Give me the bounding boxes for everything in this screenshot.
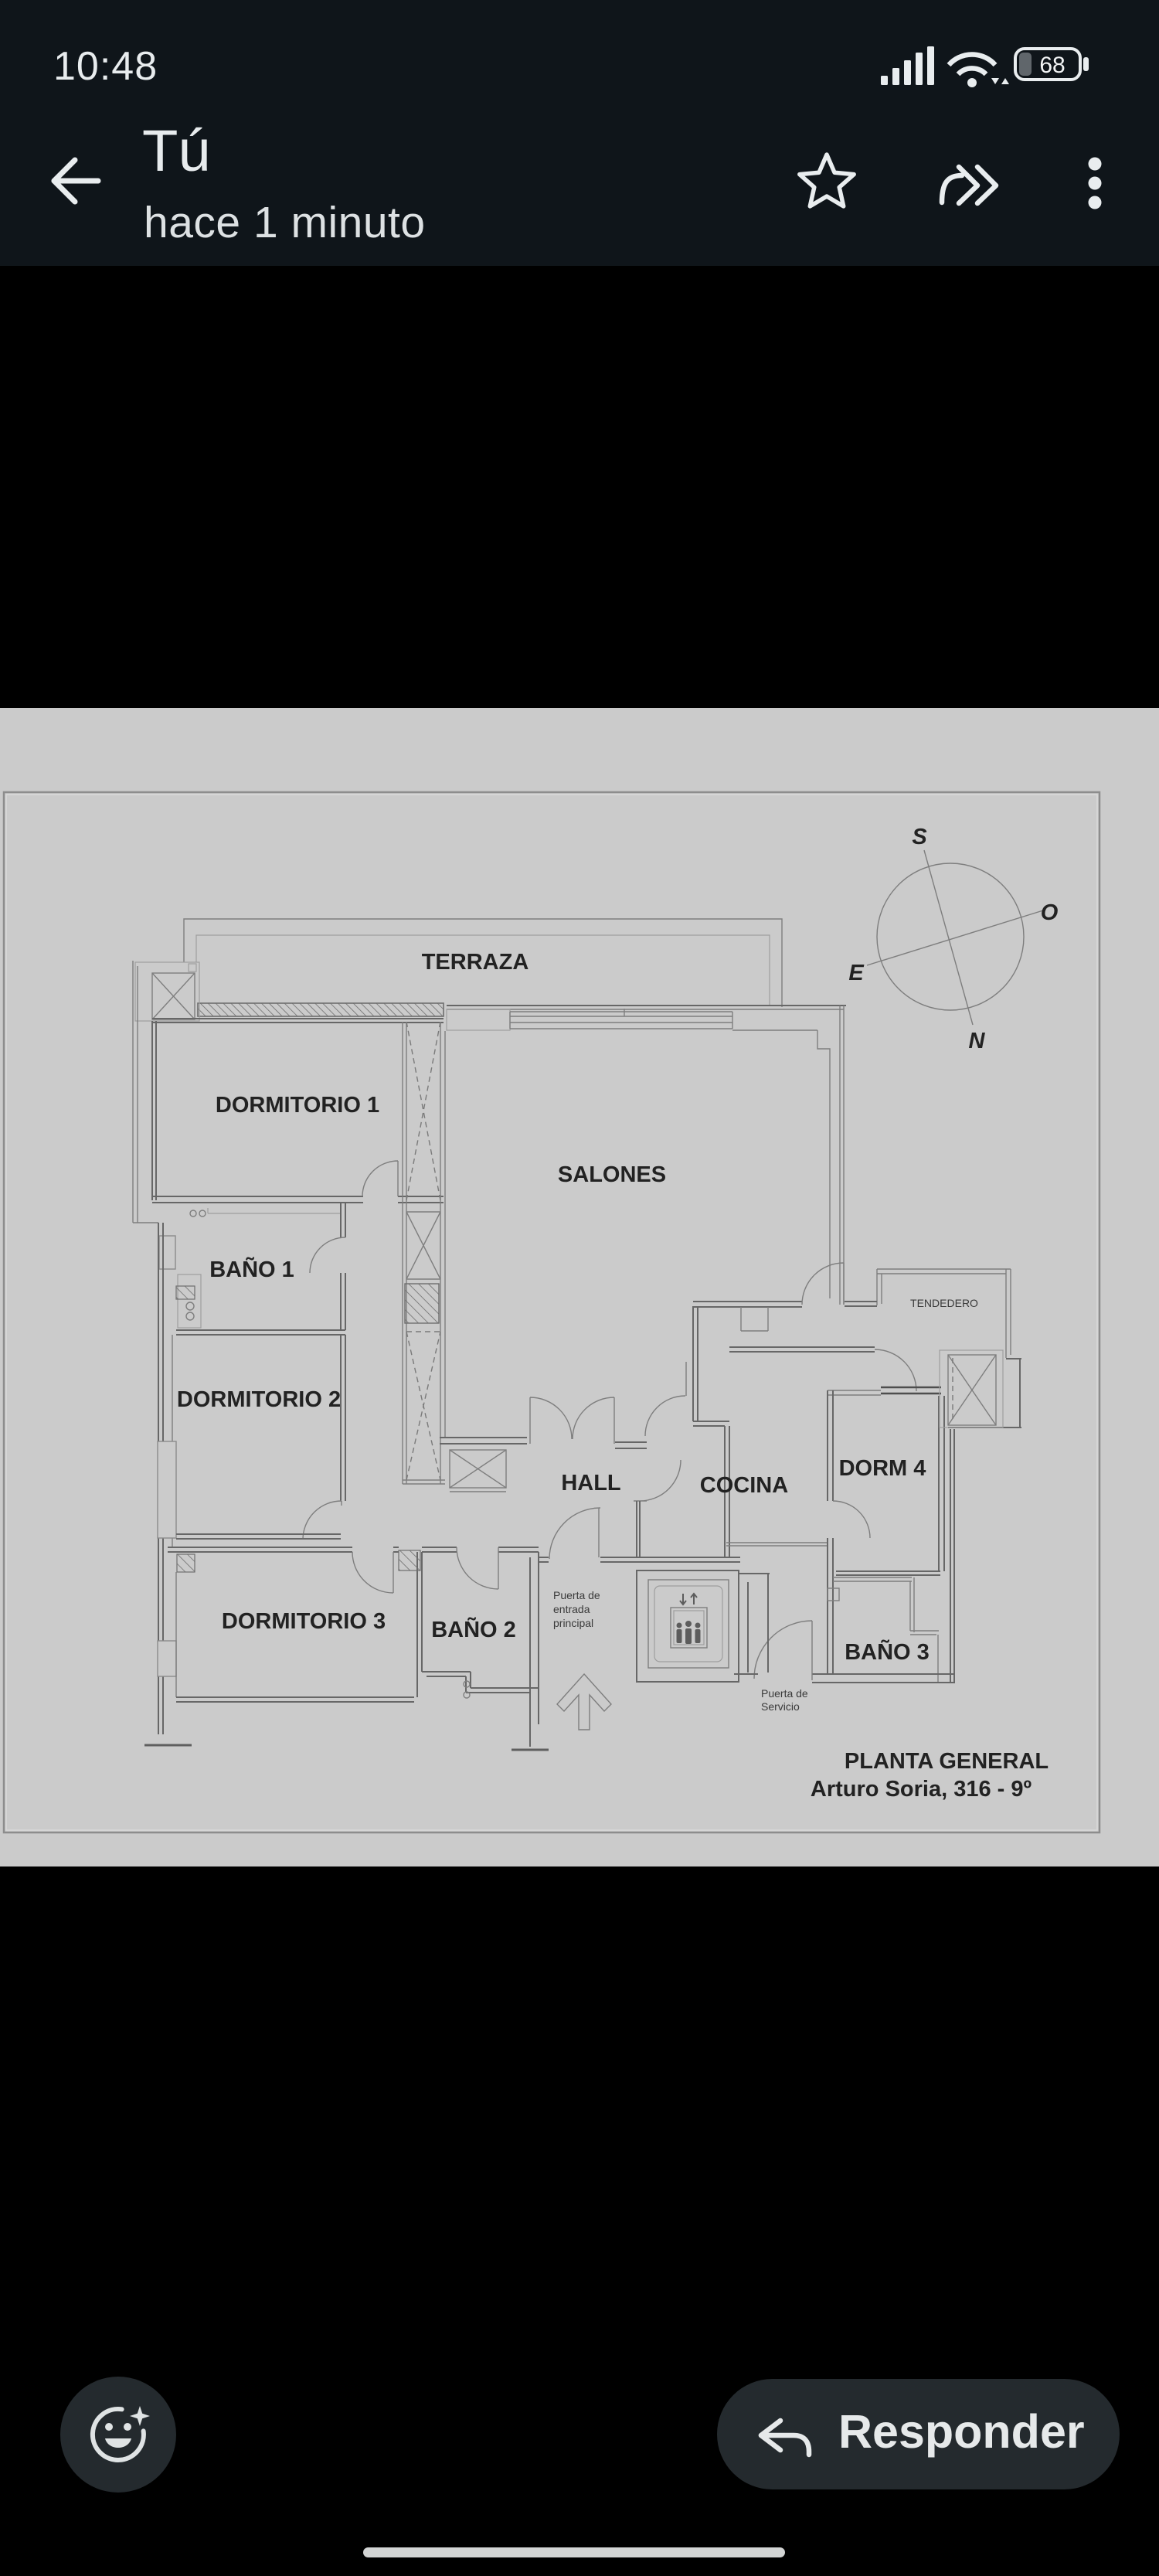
svg-text:Puerta de: Puerta de [553, 1589, 600, 1601]
svg-text:DORMITORIO 2: DORMITORIO 2 [177, 1387, 341, 1412]
svg-text:S: S [912, 825, 927, 849]
svg-text:Puerta de: Puerta de [761, 1687, 808, 1700]
svg-text:BAÑO 1: BAÑO 1 [209, 1256, 294, 1282]
svg-text:PLANTA GENERAL: PLANTA GENERAL [845, 1749, 1049, 1774]
svg-text:Arturo Soria, 316 - 9º: Arturo Soria, 316 - 9º [811, 1777, 1032, 1802]
svg-text:entrada: entrada [553, 1603, 590, 1615]
svg-text:COCINA: COCINA [700, 1473, 788, 1498]
svg-text:TENDEDERO: TENDEDERO [910, 1297, 978, 1309]
svg-text:Servicio: Servicio [761, 1700, 800, 1713]
svg-text:O: O [1041, 900, 1059, 925]
svg-text:DORMITORIO 1: DORMITORIO 1 [216, 1093, 379, 1118]
svg-text:E: E [848, 961, 865, 985]
svg-text:SALONES: SALONES [558, 1162, 666, 1187]
svg-text:TERRAZA: TERRAZA [422, 950, 529, 975]
svg-text:68: 68 [1039, 53, 1065, 78]
svg-text:N: N [969, 1029, 986, 1053]
svg-text:BAÑO 2: BAÑO 2 [431, 1616, 516, 1642]
svg-text:principal: principal [553, 1617, 593, 1629]
svg-text:DORMITORIO 3: DORMITORIO 3 [222, 1609, 386, 1634]
svg-text:HALL: HALL [561, 1471, 620, 1496]
svg-text:BAÑO 3: BAÑO 3 [845, 1638, 930, 1665]
svg-text:DORM 4: DORM 4 [839, 1456, 926, 1481]
